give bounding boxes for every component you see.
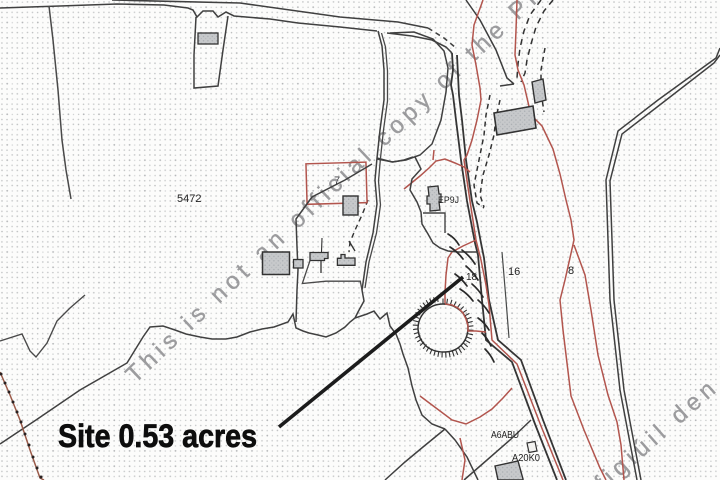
svg-text:8: 8: [568, 265, 574, 277]
svg-text:18: 18: [466, 272, 478, 283]
svg-text:5472: 5472: [177, 193, 201, 205]
svg-text:A6ABU: A6ABU: [491, 430, 519, 441]
svg-text:Site 0.53 acres: Site 0.53 acres: [58, 418, 257, 454]
svg-text:16: 16: [508, 266, 520, 278]
svg-text:EP9J: EP9J: [438, 195, 459, 206]
